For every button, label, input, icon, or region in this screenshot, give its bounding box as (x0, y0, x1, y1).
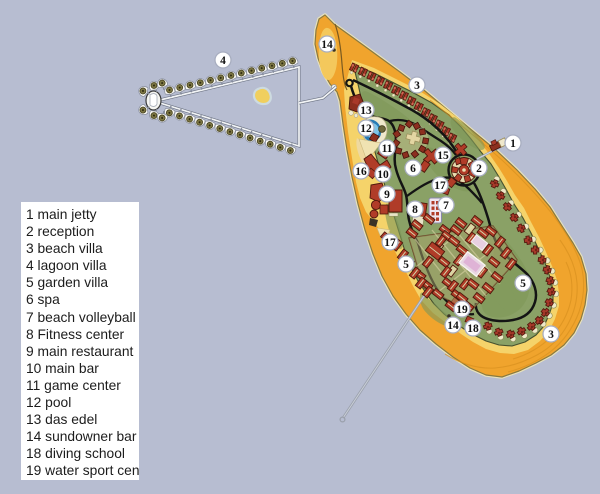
svg-text:3: 3 (548, 329, 554, 341)
svg-text:5: 5 (403, 259, 409, 271)
svg-text:10: 10 (377, 169, 389, 181)
svg-text:12: 12 (360, 123, 372, 135)
svg-text:7: 7 (443, 200, 449, 212)
svg-text:17: 17 (434, 180, 446, 192)
svg-text:11: 11 (382, 143, 393, 155)
svg-text:13: 13 (360, 105, 372, 117)
svg-text:4: 4 (220, 55, 226, 67)
svg-text:16: 16 (355, 166, 367, 178)
svg-text:5: 5 (520, 278, 526, 290)
svg-text:1: 1 (510, 138, 516, 150)
svg-text:8: 8 (412, 204, 418, 216)
svg-text:19: 19 (456, 304, 468, 316)
svg-text:17: 17 (384, 237, 396, 249)
svg-text:3: 3 (414, 80, 420, 92)
svg-text:9: 9 (384, 189, 390, 201)
svg-text:18: 18 (467, 323, 479, 335)
svg-text:6: 6 (410, 163, 416, 175)
svg-text:14: 14 (321, 39, 333, 51)
svg-text:14: 14 (447, 320, 459, 332)
svg-text:2: 2 (476, 163, 482, 175)
svg-text:15: 15 (437, 150, 449, 162)
